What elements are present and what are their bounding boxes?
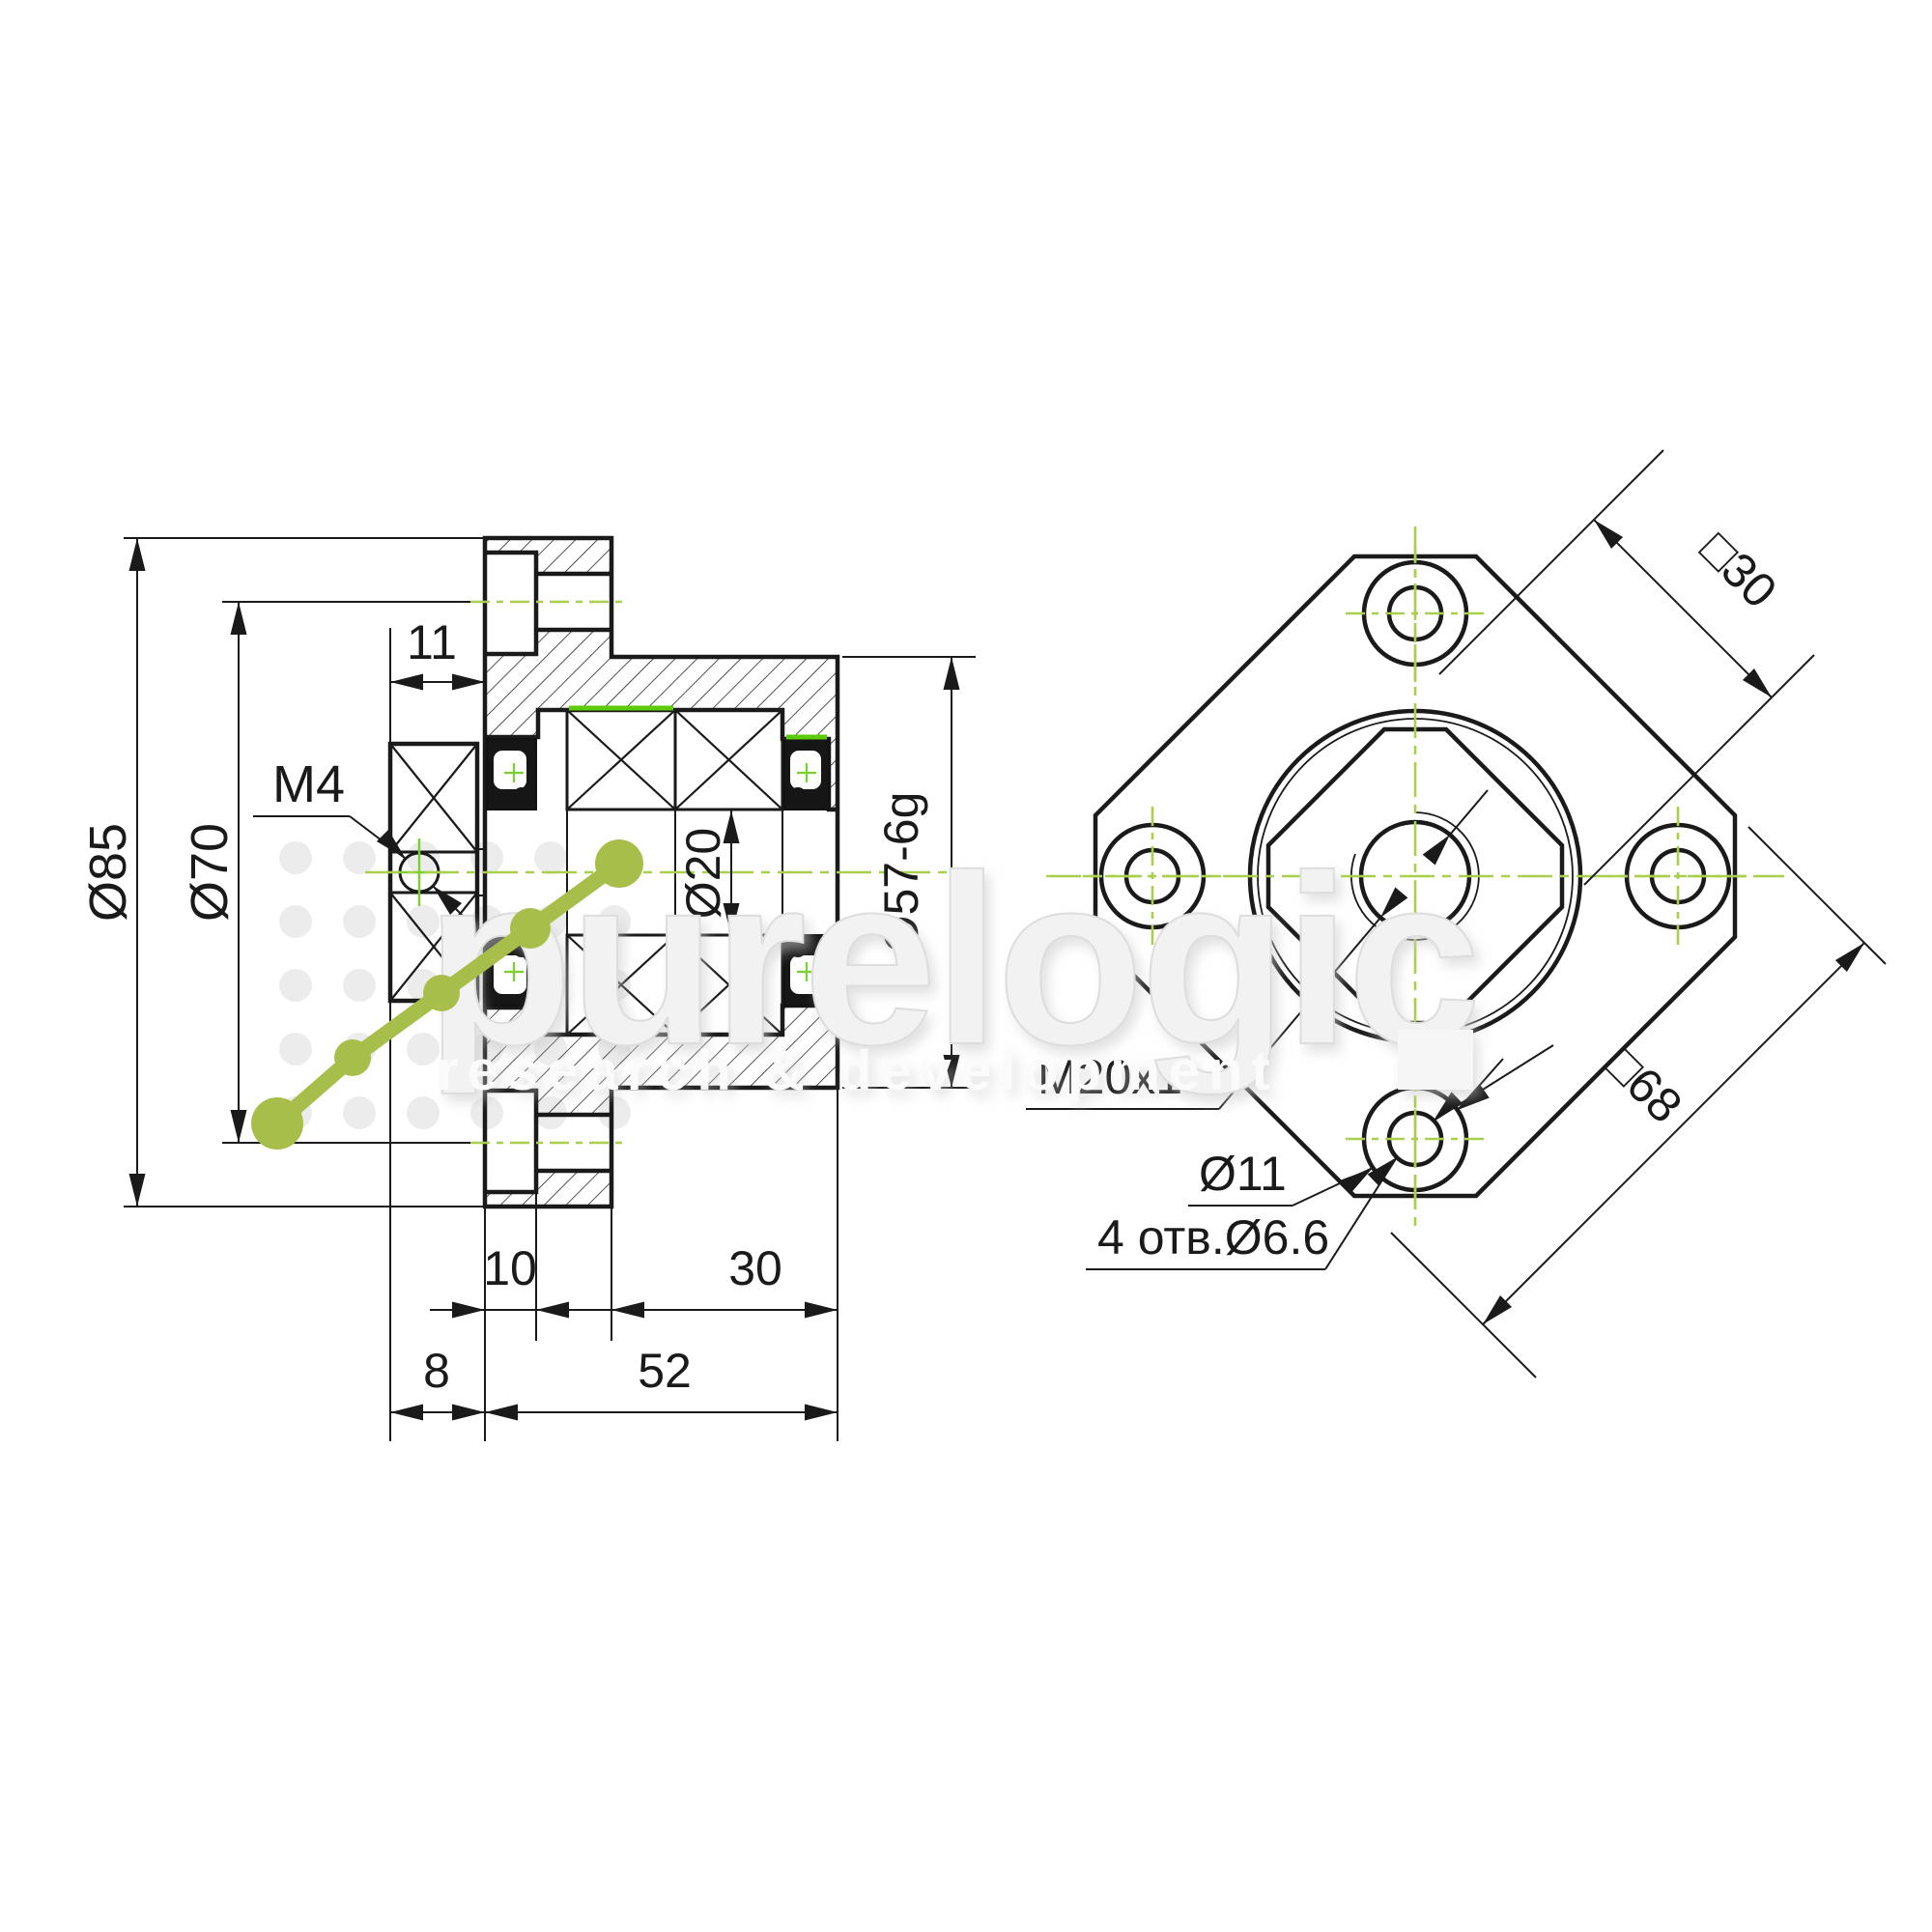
svg-text:□30: □30 bbox=[1690, 522, 1787, 618]
watermark-tagline: research & development bbox=[437, 1039, 1279, 1102]
svg-text:M4: M4 bbox=[272, 755, 345, 813]
svg-text:30: 30 bbox=[728, 1241, 782, 1295]
svg-text:Ø70: Ø70 bbox=[181, 823, 239, 922]
svg-text:□68: □68 bbox=[1596, 1037, 1692, 1133]
svg-text:4 отв.Ø6.6: 4 отв.Ø6.6 bbox=[1097, 1210, 1329, 1264]
drawing-canvas: Ø85 Ø70 11 M4 bbox=[0, 0, 1932, 1932]
svg-text:10: 10 bbox=[483, 1241, 537, 1295]
svg-text:8: 8 bbox=[423, 1344, 450, 1398]
svg-text:11: 11 bbox=[407, 615, 457, 669]
dim-nut-width: 11 bbox=[390, 615, 485, 746]
watermark-logo-square bbox=[1398, 1030, 1473, 1090]
technical-drawing-page: Ø85 Ø70 11 M4 bbox=[0, 0, 1932, 1932]
dim-nut-flats: □30 bbox=[1439, 450, 1814, 885]
watermark: purelogic research & development bbox=[425, 825, 1477, 1102]
svg-text:Ø11: Ø11 bbox=[1199, 1147, 1287, 1201]
svg-text:52: 52 bbox=[638, 1344, 692, 1398]
svg-text:Ø85: Ø85 bbox=[79, 823, 137, 922]
